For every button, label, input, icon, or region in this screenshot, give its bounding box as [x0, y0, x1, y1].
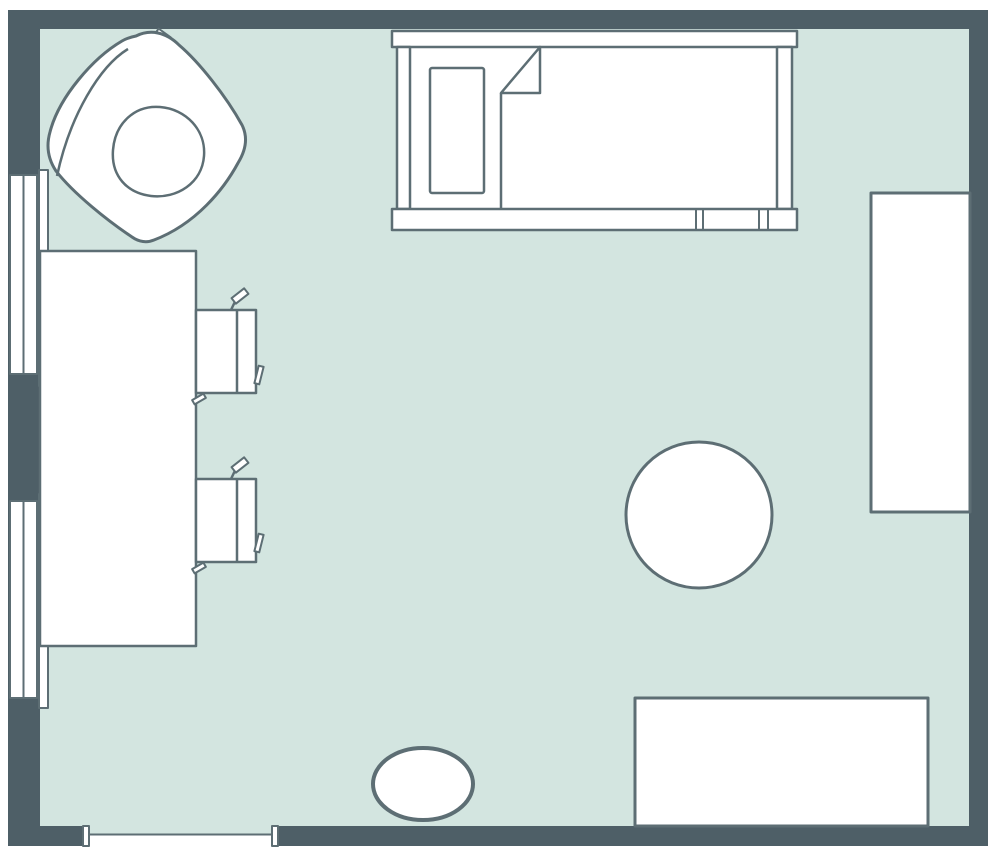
door-floor-strip [89, 826, 272, 834]
dresser[interactable] [635, 698, 928, 826]
door-jamb-left[interactable] [83, 826, 89, 846]
armchair-seat-cushion [113, 107, 204, 197]
bed-pillow [430, 68, 484, 193]
oval-rug[interactable] [373, 748, 473, 820]
bed-headboard-rail[interactable] [392, 31, 797, 47]
floorplan-canvas [0, 0, 1000, 857]
bed-footboard-rail[interactable] [392, 209, 797, 230]
bed-side-post-right [777, 47, 792, 209]
wardrobe[interactable] [871, 193, 970, 512]
round-table[interactable] [626, 442, 772, 588]
wall-top[interactable] [8, 10, 988, 29]
wall-bottom-right-segment[interactable] [278, 826, 988, 846]
wall-left[interactable] [8, 10, 40, 846]
wall-bottom-left-segment[interactable] [8, 826, 83, 846]
chair-2-seat[interactable] [196, 479, 256, 562]
desk[interactable] [40, 251, 196, 646]
floorplan-page [0, 0, 1000, 857]
bed-side-post-left [397, 47, 410, 209]
wall-right[interactable] [969, 10, 988, 846]
chair-1-seat[interactable] [196, 310, 256, 393]
door-jamb-right[interactable] [272, 826, 278, 846]
